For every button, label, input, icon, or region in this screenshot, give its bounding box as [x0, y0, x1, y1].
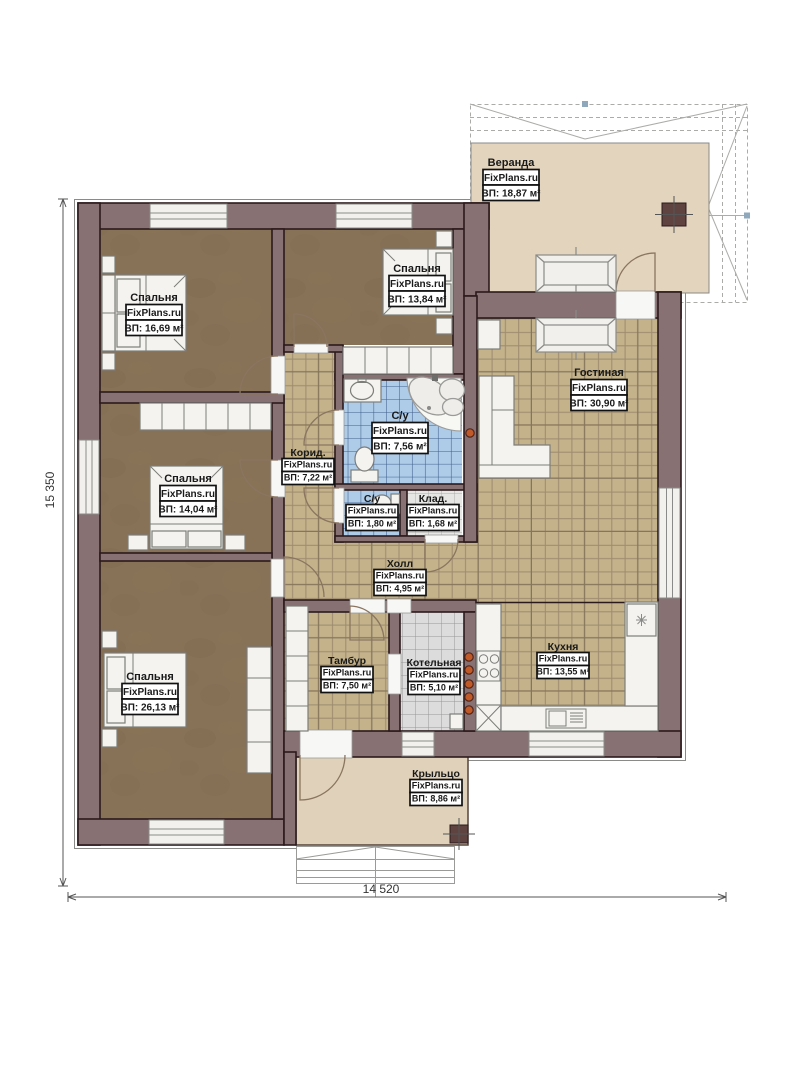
- svg-text:FixPlans.ru: FixPlans.ru: [572, 383, 626, 394]
- svg-text:Гостиная: Гостиная: [574, 367, 624, 379]
- svg-text:ВП: 8,86 м²: ВП: 8,86 м²: [412, 794, 460, 804]
- svg-text:15 350: 15 350: [43, 471, 57, 508]
- svg-text:ВП: 1,68 м²: ВП: 1,68 м²: [409, 519, 457, 529]
- svg-text:Спальня: Спальня: [393, 263, 441, 275]
- svg-text:FixPlans.ru: FixPlans.ru: [412, 781, 461, 791]
- svg-text:Корид.: Корид.: [290, 447, 325, 459]
- svg-text:FixPlans.ru: FixPlans.ru: [539, 654, 588, 664]
- svg-text:ВП: 7,22 м²: ВП: 7,22 м²: [284, 473, 332, 483]
- svg-text:Клад.: Клад.: [419, 493, 448, 505]
- svg-text:ВП: 16,69 м²: ВП: 16,69 м²: [124, 324, 184, 335]
- svg-text:Крыльцо: Крыльцо: [412, 768, 460, 780]
- svg-text:ВП: 1,80 м²: ВП: 1,80 м²: [348, 519, 396, 529]
- svg-text:FixPlans.ru: FixPlans.ru: [376, 571, 425, 581]
- svg-text:Веранда: Веранда: [488, 157, 536, 169]
- svg-text:FixPlans.ru: FixPlans.ru: [348, 506, 397, 516]
- svg-text:ВП: 30,90 м²: ВП: 30,90 м²: [569, 399, 629, 410]
- svg-text:Тамбур: Тамбур: [328, 655, 366, 667]
- svg-text:Кухня: Кухня: [548, 641, 579, 653]
- svg-text:ВП: 13,55 м²: ВП: 13,55 м²: [536, 667, 589, 677]
- svg-text:ВП: 4,95 м²: ВП: 4,95 м²: [376, 584, 424, 594]
- svg-text:Спальня: Спальня: [130, 292, 178, 304]
- svg-text:ВП: 13,84 м²: ВП: 13,84 м²: [387, 295, 447, 306]
- svg-text:ВП: 14,04 м²: ВП: 14,04 м²: [158, 505, 218, 516]
- svg-text:FixPlans.ru: FixPlans.ru: [390, 279, 444, 290]
- svg-text:С/у: С/у: [391, 410, 409, 422]
- svg-text:Спальня: Спальня: [164, 473, 212, 485]
- svg-text:FixPlans.ru: FixPlans.ru: [373, 426, 427, 437]
- svg-text:ВП: 7,56 м²: ВП: 7,56 м²: [373, 442, 427, 453]
- svg-text:Котельная: Котельная: [407, 657, 462, 669]
- svg-text:FixPlans.ru: FixPlans.ru: [161, 489, 215, 500]
- svg-text:FixPlans.ru: FixPlans.ru: [410, 670, 459, 680]
- svg-text:FixPlans.ru: FixPlans.ru: [409, 506, 458, 516]
- svg-text:Спальня: Спальня: [126, 671, 174, 683]
- svg-text:С/у: С/у: [364, 493, 381, 505]
- svg-text:ВП: 5,10 м²: ВП: 5,10 м²: [410, 683, 458, 693]
- svg-text:ВП: 18,87 м²: ВП: 18,87 м²: [481, 189, 541, 200]
- svg-text:FixPlans.ru: FixPlans.ru: [484, 173, 538, 184]
- svg-text:ВП: 26,13 м²: ВП: 26,13 м²: [120, 703, 180, 714]
- svg-text:14 520: 14 520: [363, 882, 400, 896]
- svg-text:FixPlans.ru: FixPlans.ru: [127, 308, 181, 319]
- svg-text:ВП: 7,50 м²: ВП: 7,50 м²: [323, 681, 371, 691]
- svg-text:Холл: Холл: [387, 558, 413, 570]
- svg-text:FixPlans.ru: FixPlans.ru: [123, 687, 177, 698]
- svg-text:FixPlans.ru: FixPlans.ru: [323, 668, 372, 678]
- svg-text:FixPlans.ru: FixPlans.ru: [284, 460, 333, 470]
